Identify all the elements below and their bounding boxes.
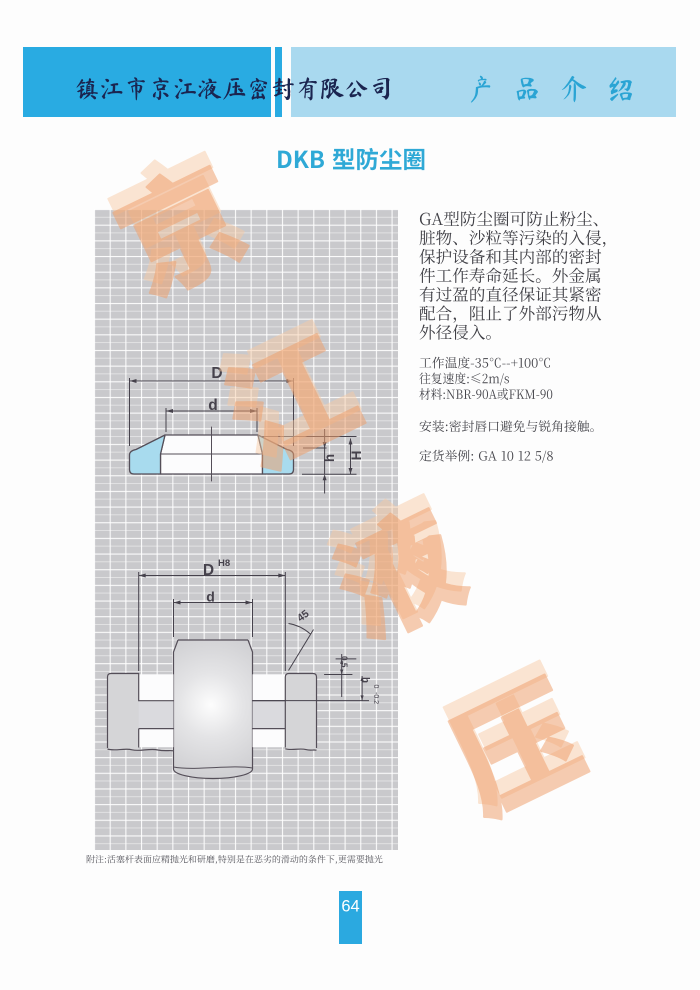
svg-text:0: 0 <box>372 685 379 689</box>
svg-text:h: h <box>360 677 371 683</box>
svg-text:-0.2: -0.2 <box>372 692 379 704</box>
svg-text:H: H <box>349 451 364 461</box>
svg-text:64: 64 <box>341 898 359 916</box>
svg-text:H8: H8 <box>218 558 230 569</box>
svg-text:d: d <box>206 589 215 605</box>
svg-text:d: d <box>208 397 217 414</box>
svg-text:0.5: 0.5 <box>340 656 349 668</box>
svg-text:D: D <box>203 562 214 579</box>
svg-text:h: h <box>322 454 337 462</box>
